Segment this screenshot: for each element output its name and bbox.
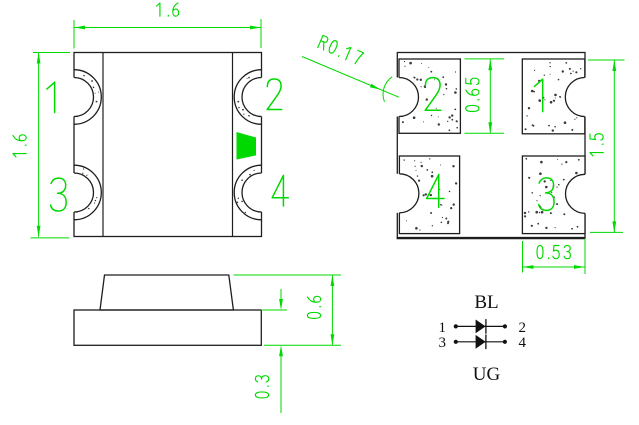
svg-text:3: 3 (439, 335, 447, 351)
svg-text:2: 2 (519, 320, 527, 336)
svg-text:UG: UG (473, 364, 501, 385)
svg-text:BL: BL (474, 292, 498, 313)
svg-text:4: 4 (519, 335, 527, 351)
svg-text:1: 1 (439, 320, 447, 336)
